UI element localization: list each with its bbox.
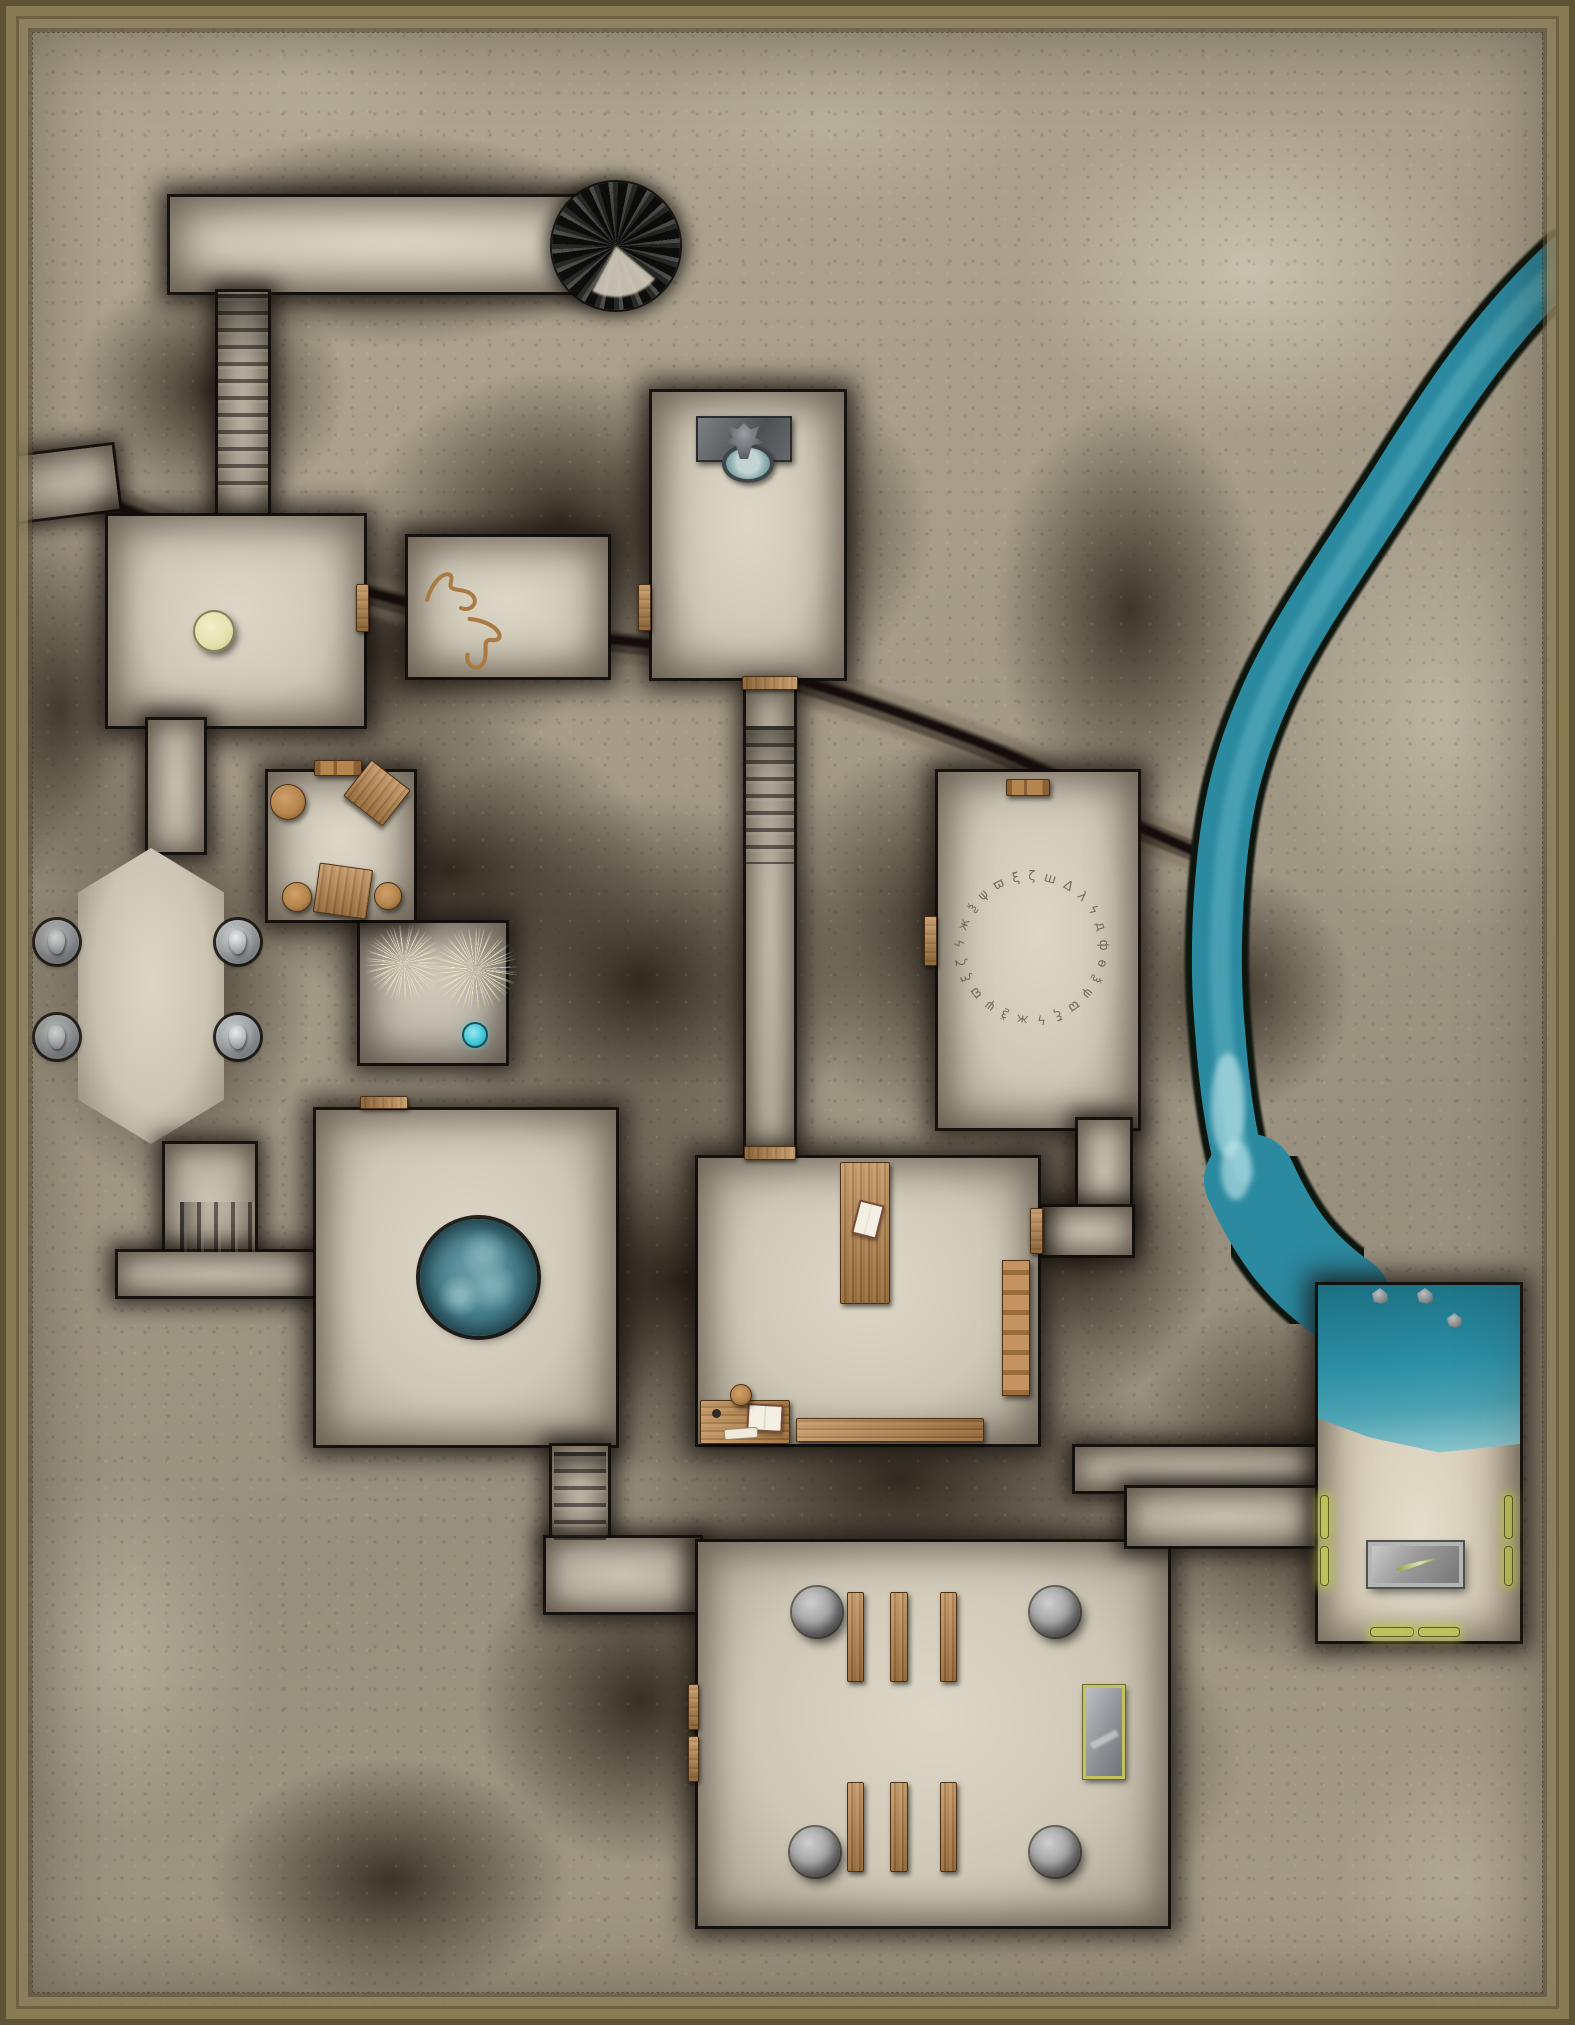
glow-bar-w1 <box>1320 1495 1329 1539</box>
rune-circle: ϟ ж ѯ ψ ϖ ξ ζ ш Δ λ ϟ д ф ѳ ѯ ψ ϖ ξ ϟ ж … <box>952 868 1112 1028</box>
door-study-north <box>744 1146 796 1160</box>
beached-river-water <box>1318 1285 1520 1456</box>
door-hall-rope <box>356 584 369 632</box>
glow-bar-w2 <box>1320 1546 1329 1586</box>
round-water-pool <box>420 1219 537 1336</box>
ink-pot <box>712 1409 721 1418</box>
carved-face <box>229 1025 246 1050</box>
door-rune-west <box>924 916 937 966</box>
study-bookshelf <box>1002 1260 1030 1396</box>
underground-river <box>1211 258 1568 1300</box>
pillar-sw <box>790 1827 840 1877</box>
square-table-b <box>313 862 373 919</box>
stool-a <box>270 784 306 820</box>
pillar-ne <box>1030 1587 1080 1637</box>
dungeon-map: ϟ ж ѯ ψ ϖ ξ ζ ш Δ λ ϟ д ф ѳ ѯ ψ ϖ ξ ϟ ж … <box>0 0 1575 2025</box>
study-bench <box>796 1418 984 1442</box>
temple-stairs <box>554 1452 606 1540</box>
face-medallion-sw <box>35 1015 79 1059</box>
chamber-stairs <box>180 1202 255 1252</box>
open-book <box>852 1200 886 1240</box>
metal-slab <box>1368 1542 1463 1587</box>
bench-rune-room <box>1006 779 1050 796</box>
glow-bar-e1 <box>1504 1495 1513 1539</box>
door-rope-fountain <box>638 584 651 631</box>
study-chair <box>730 1384 752 1406</box>
carved-face <box>229 930 246 955</box>
wall-fountain <box>696 416 792 462</box>
pew-n2 <box>890 1592 908 1682</box>
hall-chamber-corridor <box>148 720 204 852</box>
green-sword <box>1395 1555 1437 1573</box>
stool-c <box>374 882 402 910</box>
spiral-staircase <box>552 182 680 310</box>
study-long-table <box>840 1162 890 1304</box>
study-desk <box>700 1400 790 1444</box>
bench-table-room-door <box>314 760 362 776</box>
pew-n3 <box>940 1592 957 1682</box>
pillar-se <box>1030 1827 1080 1877</box>
pew-s1 <box>847 1782 864 1872</box>
carved-face <box>48 930 65 955</box>
small-cyan-pool <box>462 1022 488 1048</box>
pillar-nw <box>792 1587 842 1637</box>
face-medallion-ne <box>216 920 260 964</box>
stone-pedestal <box>193 610 235 652</box>
north-stairs <box>218 294 268 490</box>
face-medallion-nw <box>35 920 79 964</box>
entrance-hall <box>108 516 364 726</box>
pew-n1 <box>847 1592 864 1682</box>
glow-bar-s1 <box>1370 1627 1414 1637</box>
rune-study-corridor-v <box>1078 1120 1130 1220</box>
scroll <box>724 1427 758 1441</box>
rope-coil-a <box>420 556 492 618</box>
glow-bar-s2 <box>1418 1627 1460 1637</box>
temple-beach-corridor <box>1075 1447 1322 1491</box>
face-medallion-se <box>216 1015 260 1059</box>
stool-b <box>282 882 312 912</box>
carved-face <box>48 1025 65 1050</box>
rune-study-corridor-h <box>1042 1207 1132 1255</box>
door-fountain-stairs <box>742 676 798 690</box>
temple-northeast-extension <box>1127 1488 1320 1546</box>
pew-s2 <box>890 1782 908 1872</box>
stone-altar <box>1083 1685 1125 1779</box>
door-study-east <box>1030 1208 1043 1254</box>
rope-coil-b <box>450 605 526 687</box>
glow-bar-e2 <box>1504 1546 1513 1586</box>
beach-room <box>1318 1285 1520 1641</box>
temple-vestibule <box>546 1538 700 1612</box>
faces-chamber <box>78 848 224 1144</box>
southwest-corridor <box>118 1252 318 1296</box>
door-temple-west-b <box>688 1736 699 1782</box>
pew-s3 <box>940 1782 957 1872</box>
central-stairs <box>746 726 794 864</box>
svg-text:ϟ ж ѯ ψ ϖ ξ ζ ш Δ λ ϟ д ф ѳ ѯ: ϟ ж ѯ ψ ϖ ξ ζ ш Δ λ ϟ д ф ѳ ѯ ψ ϖ ξ ϟ ж … <box>952 868 1111 1027</box>
door-moss-pool <box>360 1096 408 1109</box>
door-temple-west-a <box>688 1684 699 1730</box>
